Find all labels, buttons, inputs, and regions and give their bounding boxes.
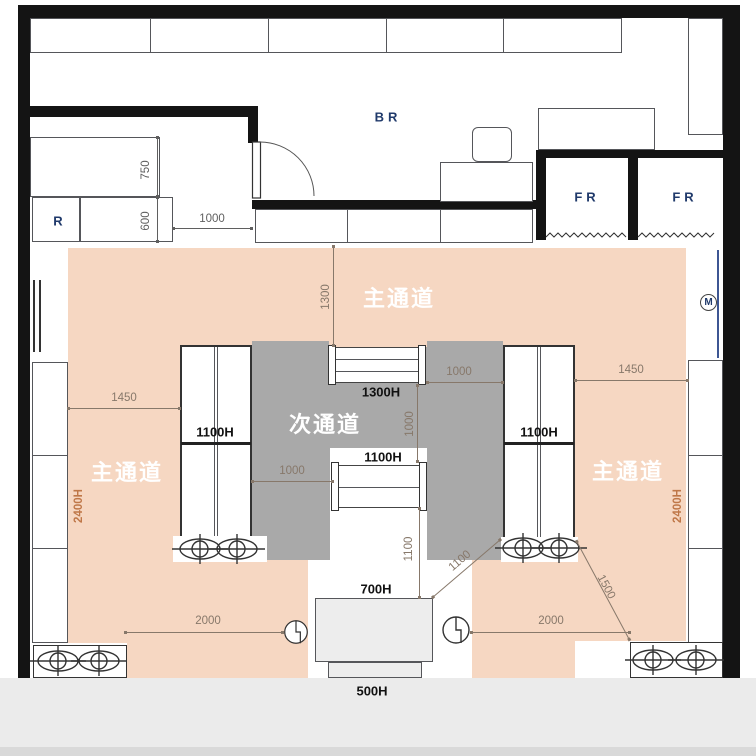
height-island-bottom: 1100H — [364, 450, 402, 465]
dim-1000-register: 1000 — [199, 213, 225, 225]
aisle-label-main-top: 主通道 — [363, 281, 435, 313]
dim-1100-center: 1100 — [403, 537, 415, 562]
dim-line-750 — [157, 137, 158, 197]
eye-symbol — [209, 532, 265, 566]
door-swing — [252, 140, 316, 200]
rack-end-cap — [419, 462, 427, 511]
wall-br-stub — [248, 106, 258, 143]
dim-line-2000-left — [125, 632, 283, 633]
wall-shelf-right — [688, 360, 723, 643]
backroom-equipment — [440, 162, 533, 202]
service-counter — [315, 598, 433, 662]
wall-right — [723, 5, 740, 678]
counter-front — [328, 662, 422, 678]
dim-1300: 1300 — [320, 284, 332, 310]
wall-br-left — [30, 106, 258, 117]
dim-1000-right: 1000 — [446, 366, 472, 378]
backroom-cabinet-right — [688, 18, 723, 135]
dim-1000-center: 1000 — [404, 411, 416, 437]
cabinet-divider — [150, 18, 151, 53]
dim-750: 750 — [140, 160, 152, 179]
backroom-counter — [538, 108, 655, 150]
height-gondola-left: 1100H — [196, 425, 234, 440]
shelf-divider — [32, 455, 68, 456]
dim-line-1450-left — [68, 408, 180, 409]
outside-walkway-edge — [0, 747, 756, 756]
dim-line-1100-center — [419, 508, 420, 598]
gondola-mid-shelf — [181, 442, 251, 445]
zigzag-curtain-left — [546, 232, 628, 240]
counter-divider — [440, 209, 441, 243]
wall-top — [18, 5, 740, 18]
height-counter-front: 500H — [356, 684, 387, 699]
rack-shelf-line — [333, 487, 427, 488]
floor-plan: M 750 600 1000 1300 1450 1450 1000 1000 … — [0, 0, 756, 756]
shutter-line — [717, 250, 719, 358]
dim-1450-right: 1450 — [618, 364, 644, 376]
rack-end-cap — [328, 345, 336, 385]
height-2400-left: 2400H — [73, 489, 85, 523]
shelf-divider — [32, 548, 68, 549]
post-symbol-left — [283, 619, 309, 645]
rack-shelf-line — [330, 371, 426, 372]
dim-2000-left: 2000 — [195, 615, 221, 627]
main-aisle-zone-right — [575, 345, 686, 641]
service-counter-row — [255, 209, 533, 243]
cabinet-divider — [268, 18, 269, 53]
wall-fixture-left — [33, 280, 41, 352]
rack-shelf-line — [330, 359, 426, 360]
room-label-fr-right: FR — [672, 190, 697, 205]
dim-line-1450-right — [575, 380, 688, 381]
backroom-equipment-top — [472, 127, 512, 162]
zigzag-curtain-right — [638, 232, 716, 240]
room-label-fr-left: FR — [574, 190, 599, 205]
dim-line-1000-right — [427, 382, 503, 383]
aisle-label-sub: 次通道 — [289, 407, 361, 439]
shelf-divider — [688, 455, 723, 456]
register-counter — [80, 197, 173, 242]
wall-fr-top — [536, 150, 723, 158]
backroom-cabinet-row — [30, 18, 622, 53]
height-island-top: 1300H — [362, 385, 400, 400]
post-symbol-right — [441, 615, 471, 645]
rack-end-cap — [418, 345, 426, 385]
room-label-br: BR — [375, 110, 402, 125]
height-2400-right: 2400H — [672, 489, 684, 523]
shelf-divider — [688, 548, 723, 549]
dim-2000-right: 2000 — [538, 615, 564, 627]
dim-line-1300 — [333, 246, 334, 346]
dim-600: 600 — [140, 211, 152, 230]
aisle-label-main-right: 主通道 — [592, 454, 664, 486]
gondola-mid-shelf — [504, 442, 574, 445]
dim-line-1000-register — [173, 228, 252, 229]
dim-line-600 — [157, 197, 158, 242]
dim-line-2000-right — [471, 632, 630, 633]
counter-divider — [347, 209, 348, 243]
height-gondola-right: 1100H — [520, 425, 558, 440]
cabinet-divider — [503, 18, 504, 53]
cabinet-divider — [386, 18, 387, 53]
room-label-register: R — [53, 214, 62, 229]
wall-left — [18, 5, 30, 678]
dim-line-1000-left — [252, 481, 333, 482]
sub-aisle-zone-right-leg — [427, 448, 503, 560]
rack-end-cap — [331, 462, 339, 511]
dim-1450-left: 1450 — [111, 392, 137, 404]
wall-fr-mid — [628, 158, 638, 240]
aisle-label-main-left: 主通道 — [91, 455, 163, 487]
dim-1000-left: 1000 — [279, 465, 305, 477]
wall-fr-left — [536, 158, 546, 240]
height-counter: 700H — [360, 582, 391, 597]
dim-line-1000-center — [417, 385, 418, 462]
meter-mark: M — [700, 294, 717, 311]
meter-label: M — [704, 297, 712, 308]
eye-symbol — [531, 531, 587, 565]
eye-symbol — [71, 644, 127, 678]
wall-shelf-left — [32, 362, 68, 643]
island-rack-top — [330, 347, 426, 383]
eye-symbol — [668, 643, 724, 677]
